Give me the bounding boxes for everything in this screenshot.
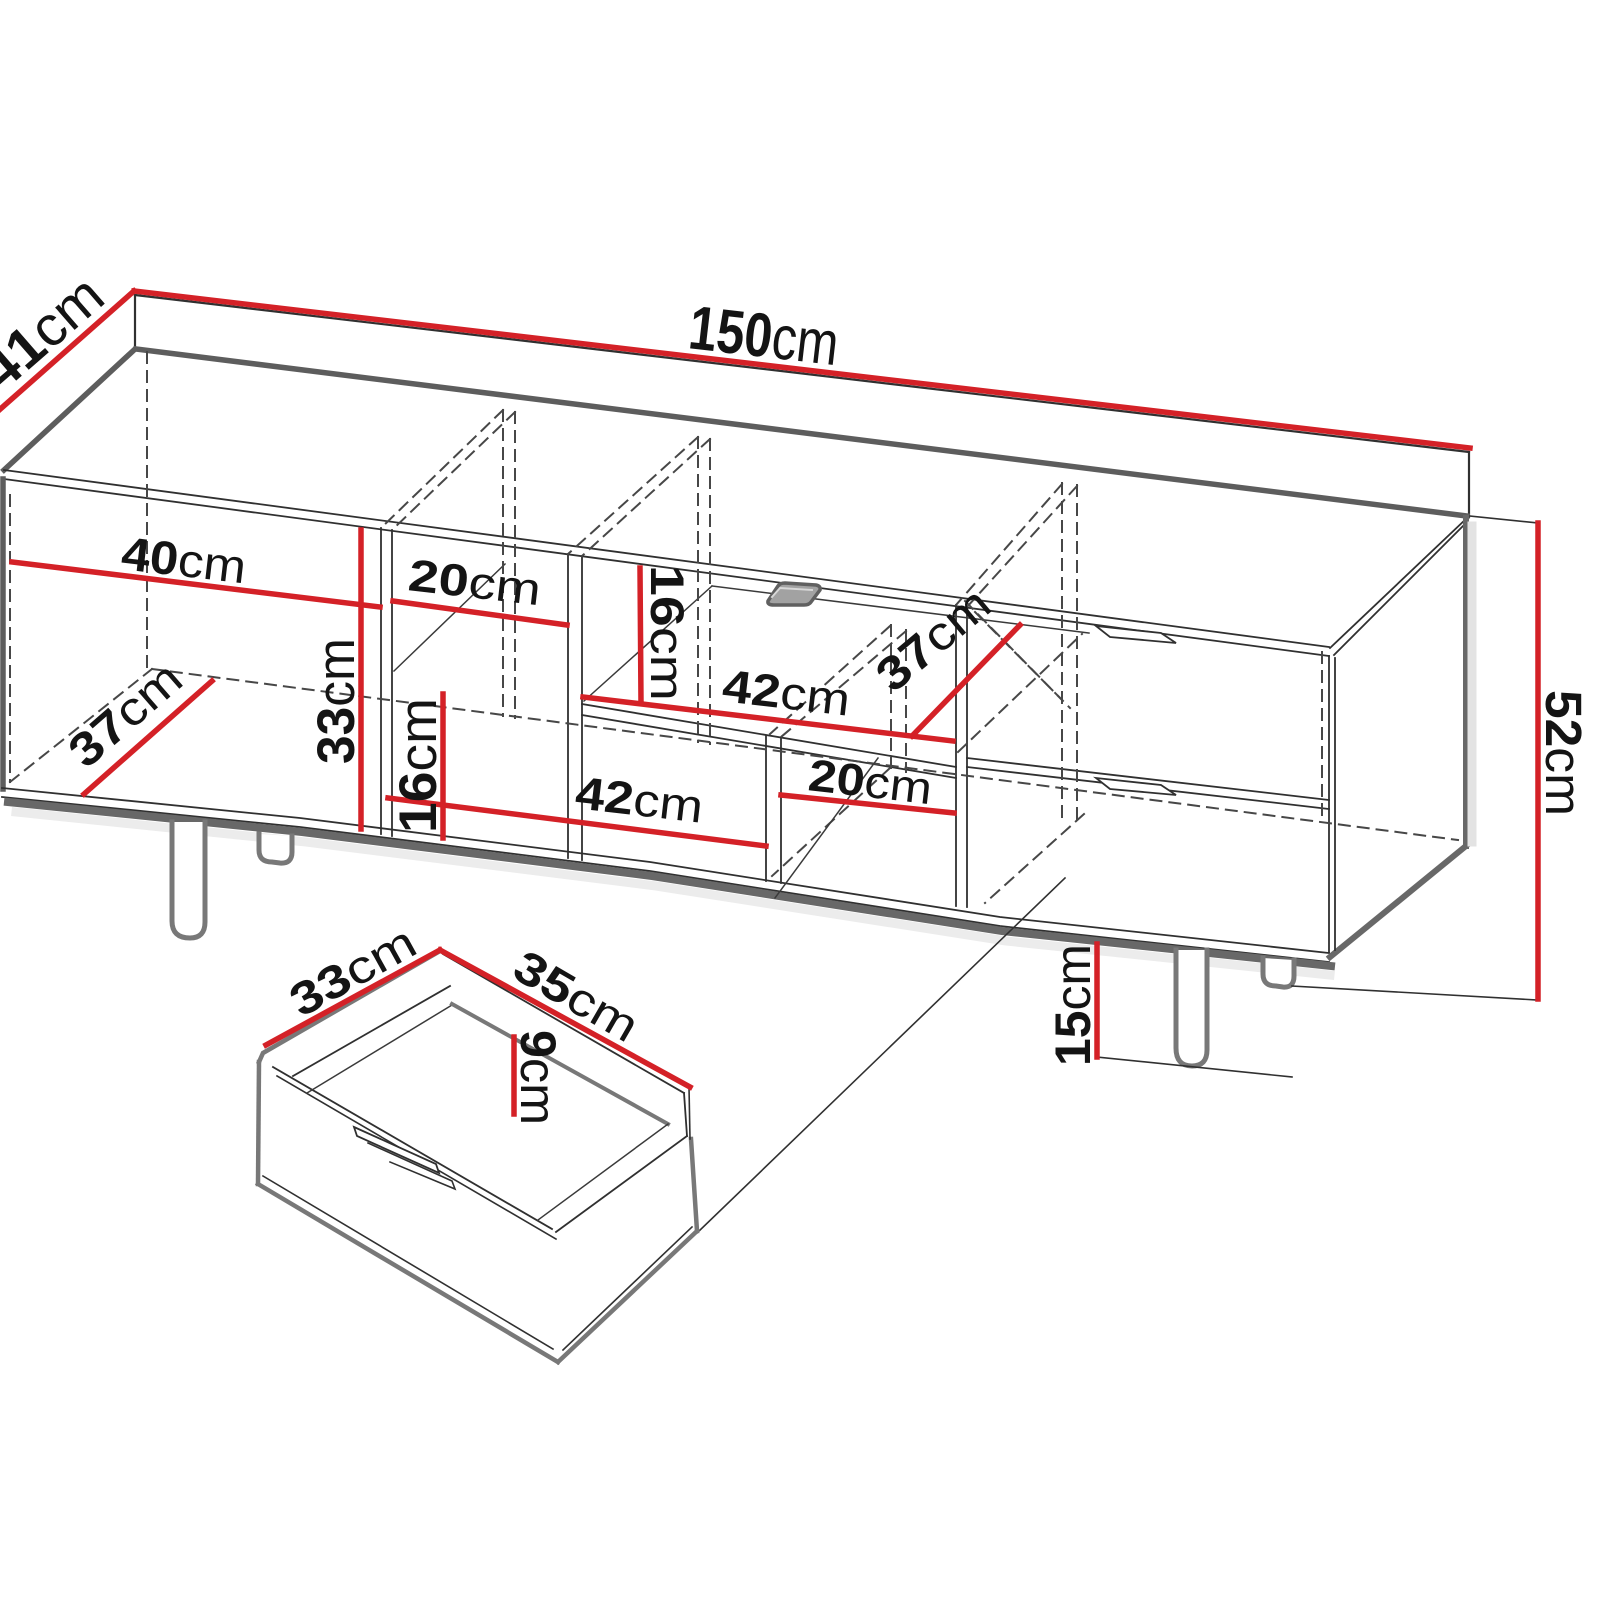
svg-text:33cm: 33cm xyxy=(307,638,366,764)
svg-text:16cm: 16cm xyxy=(389,698,448,833)
svg-text:15cm: 15cm xyxy=(1045,944,1101,1066)
svg-text:52cm: 52cm xyxy=(1535,690,1592,816)
svg-text:9cm: 9cm xyxy=(510,1030,566,1125)
svg-text:16cm: 16cm xyxy=(641,565,694,701)
